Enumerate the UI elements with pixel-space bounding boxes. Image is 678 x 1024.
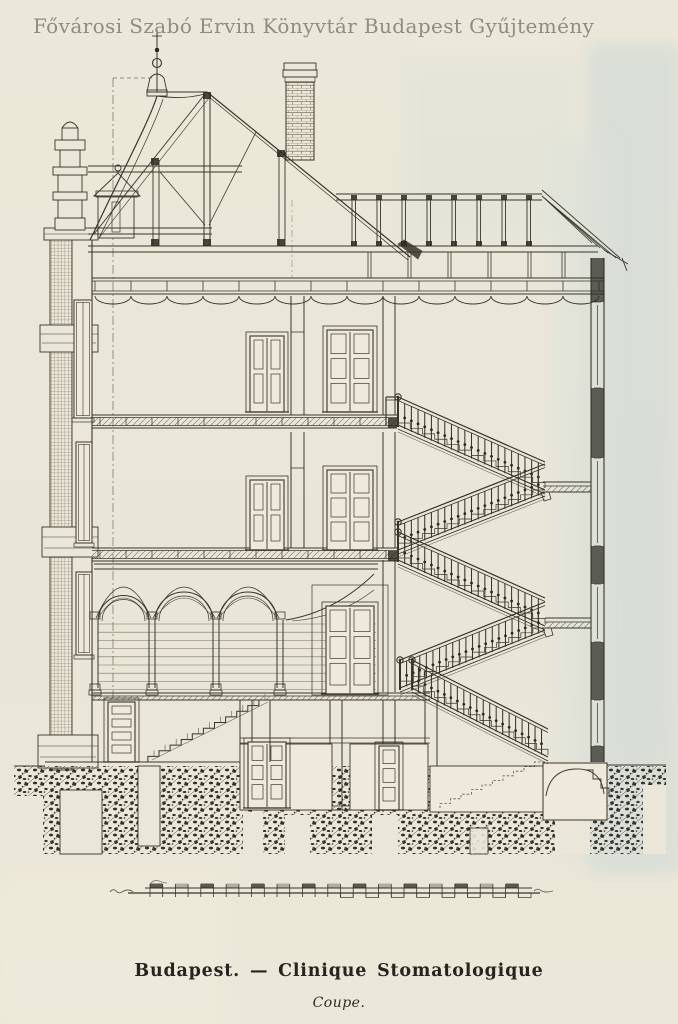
doors	[103, 326, 404, 810]
caption-title: Budapest. — Clinique Stomatologique	[0, 961, 678, 981]
architectural-section-drawing	[0, 0, 678, 1024]
top-ceiling-slab	[92, 278, 604, 304]
chimney	[283, 63, 317, 160]
caption-subtitle: Coupe.	[0, 995, 678, 1011]
floor-slabs	[92, 415, 430, 700]
left-facade-wall	[38, 122, 140, 770]
scanned-plate: Fővárosi Szabó Ervin Könyvtár Budapest G…	[0, 0, 678, 1024]
library-watermark: Fővárosi Szabó Ervin Könyvtár Budapest G…	[33, 14, 594, 38]
